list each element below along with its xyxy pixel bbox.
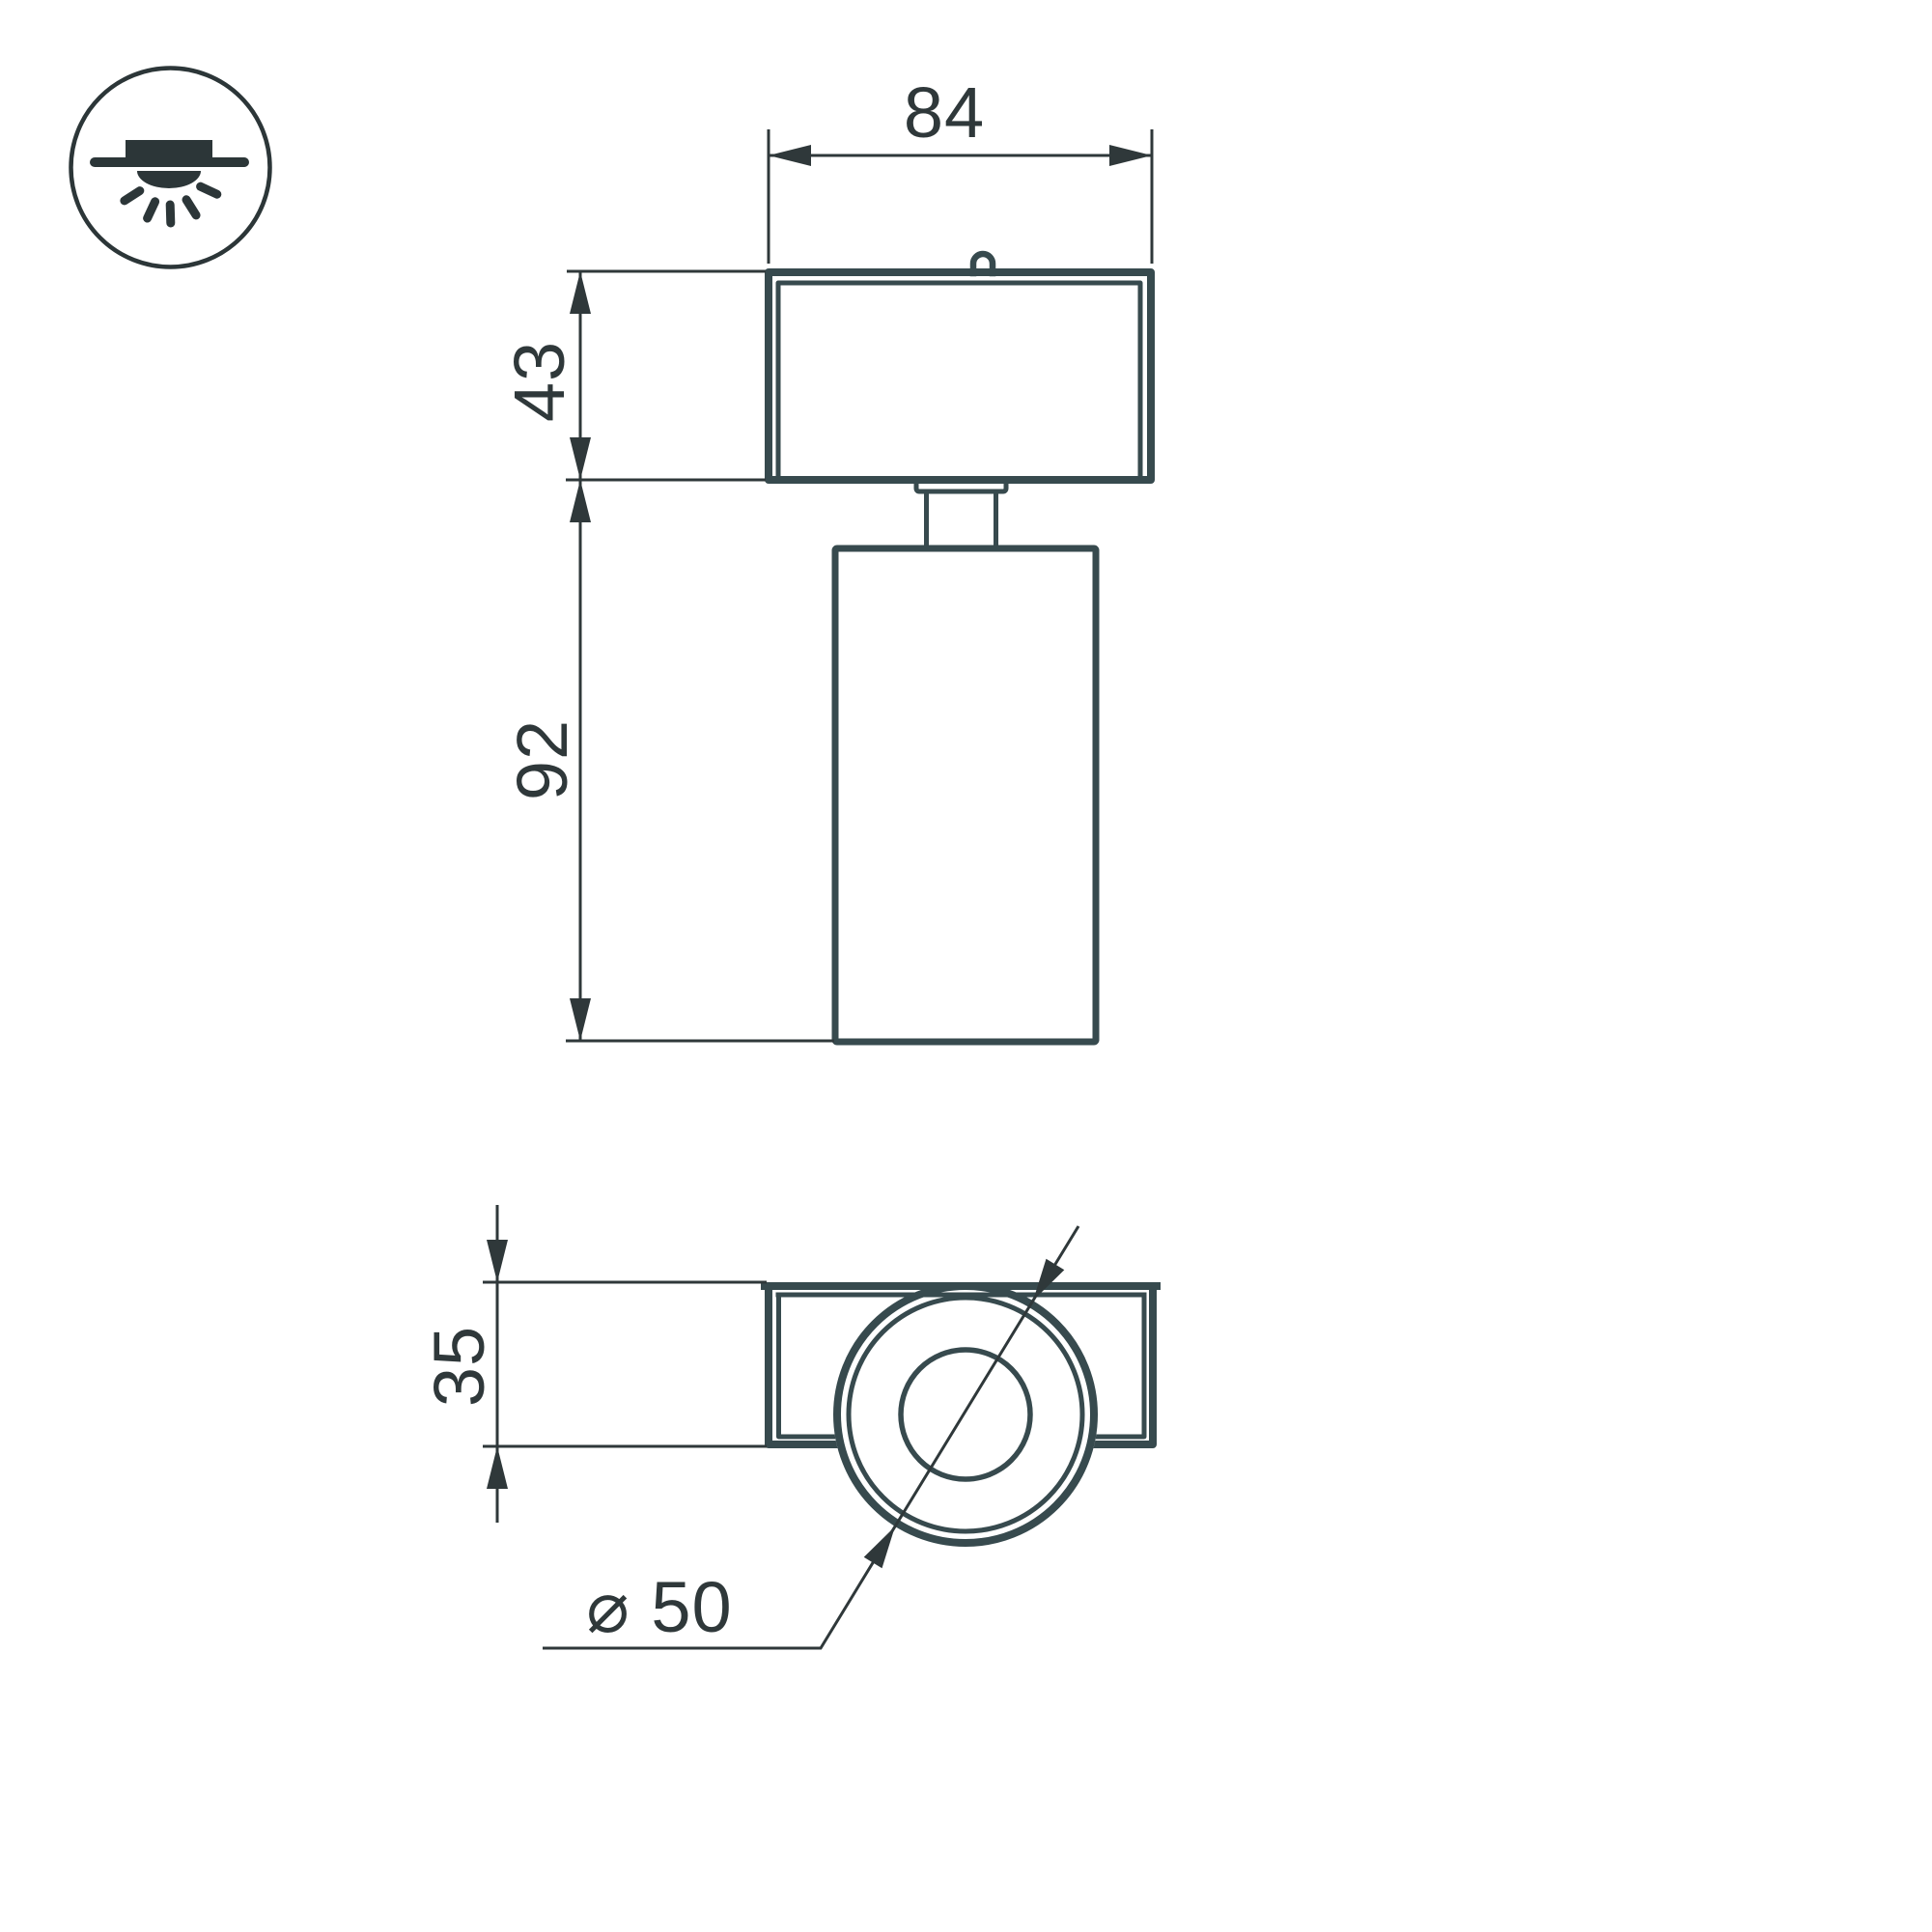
dim-43: 43 (499, 271, 766, 480)
dim-35: 35 (419, 1205, 767, 1523)
arrowhead (487, 1446, 508, 1489)
dim-35-label: 35 (419, 1326, 499, 1407)
lamp-cylinder-body (835, 548, 1096, 1042)
arrowhead (487, 1240, 508, 1282)
arrowhead (1109, 145, 1152, 166)
icon-light-ray-3 (170, 205, 171, 223)
arrowhead (570, 271, 591, 314)
dim-diameter-label: ⌀ 50 (586, 1567, 732, 1647)
dim-43-label: 43 (499, 341, 579, 422)
arrowhead (864, 1526, 895, 1568)
driver-housing-outer (769, 272, 1151, 480)
icon-light-ray-2 (148, 202, 155, 218)
front-view (769, 254, 1151, 1042)
technical-drawing: 84 43 92 (0, 0, 1932, 1932)
icon-light-ray-4 (186, 200, 196, 215)
arrowhead (570, 437, 591, 480)
icon-light-ray-1 (125, 191, 140, 201)
icon-badge-circle (71, 69, 270, 267)
ceiling-light-icon (71, 69, 270, 267)
dim-84-label: 84 (904, 72, 985, 153)
icon-lamp-dome (137, 171, 201, 188)
drawing-canvas: 84 43 92 (0, 0, 1932, 1932)
dim-92-label: 92 (502, 719, 582, 800)
icon-light-ray-5 (201, 186, 217, 194)
arrowhead (769, 145, 811, 166)
pivot-stem (927, 491, 996, 549)
dim-84: 84 (769, 72, 1152, 264)
bottom-view (765, 1282, 1157, 1547)
arrowhead (570, 480, 591, 522)
arrowhead (570, 998, 591, 1041)
dim-92: 92 (502, 480, 834, 1041)
